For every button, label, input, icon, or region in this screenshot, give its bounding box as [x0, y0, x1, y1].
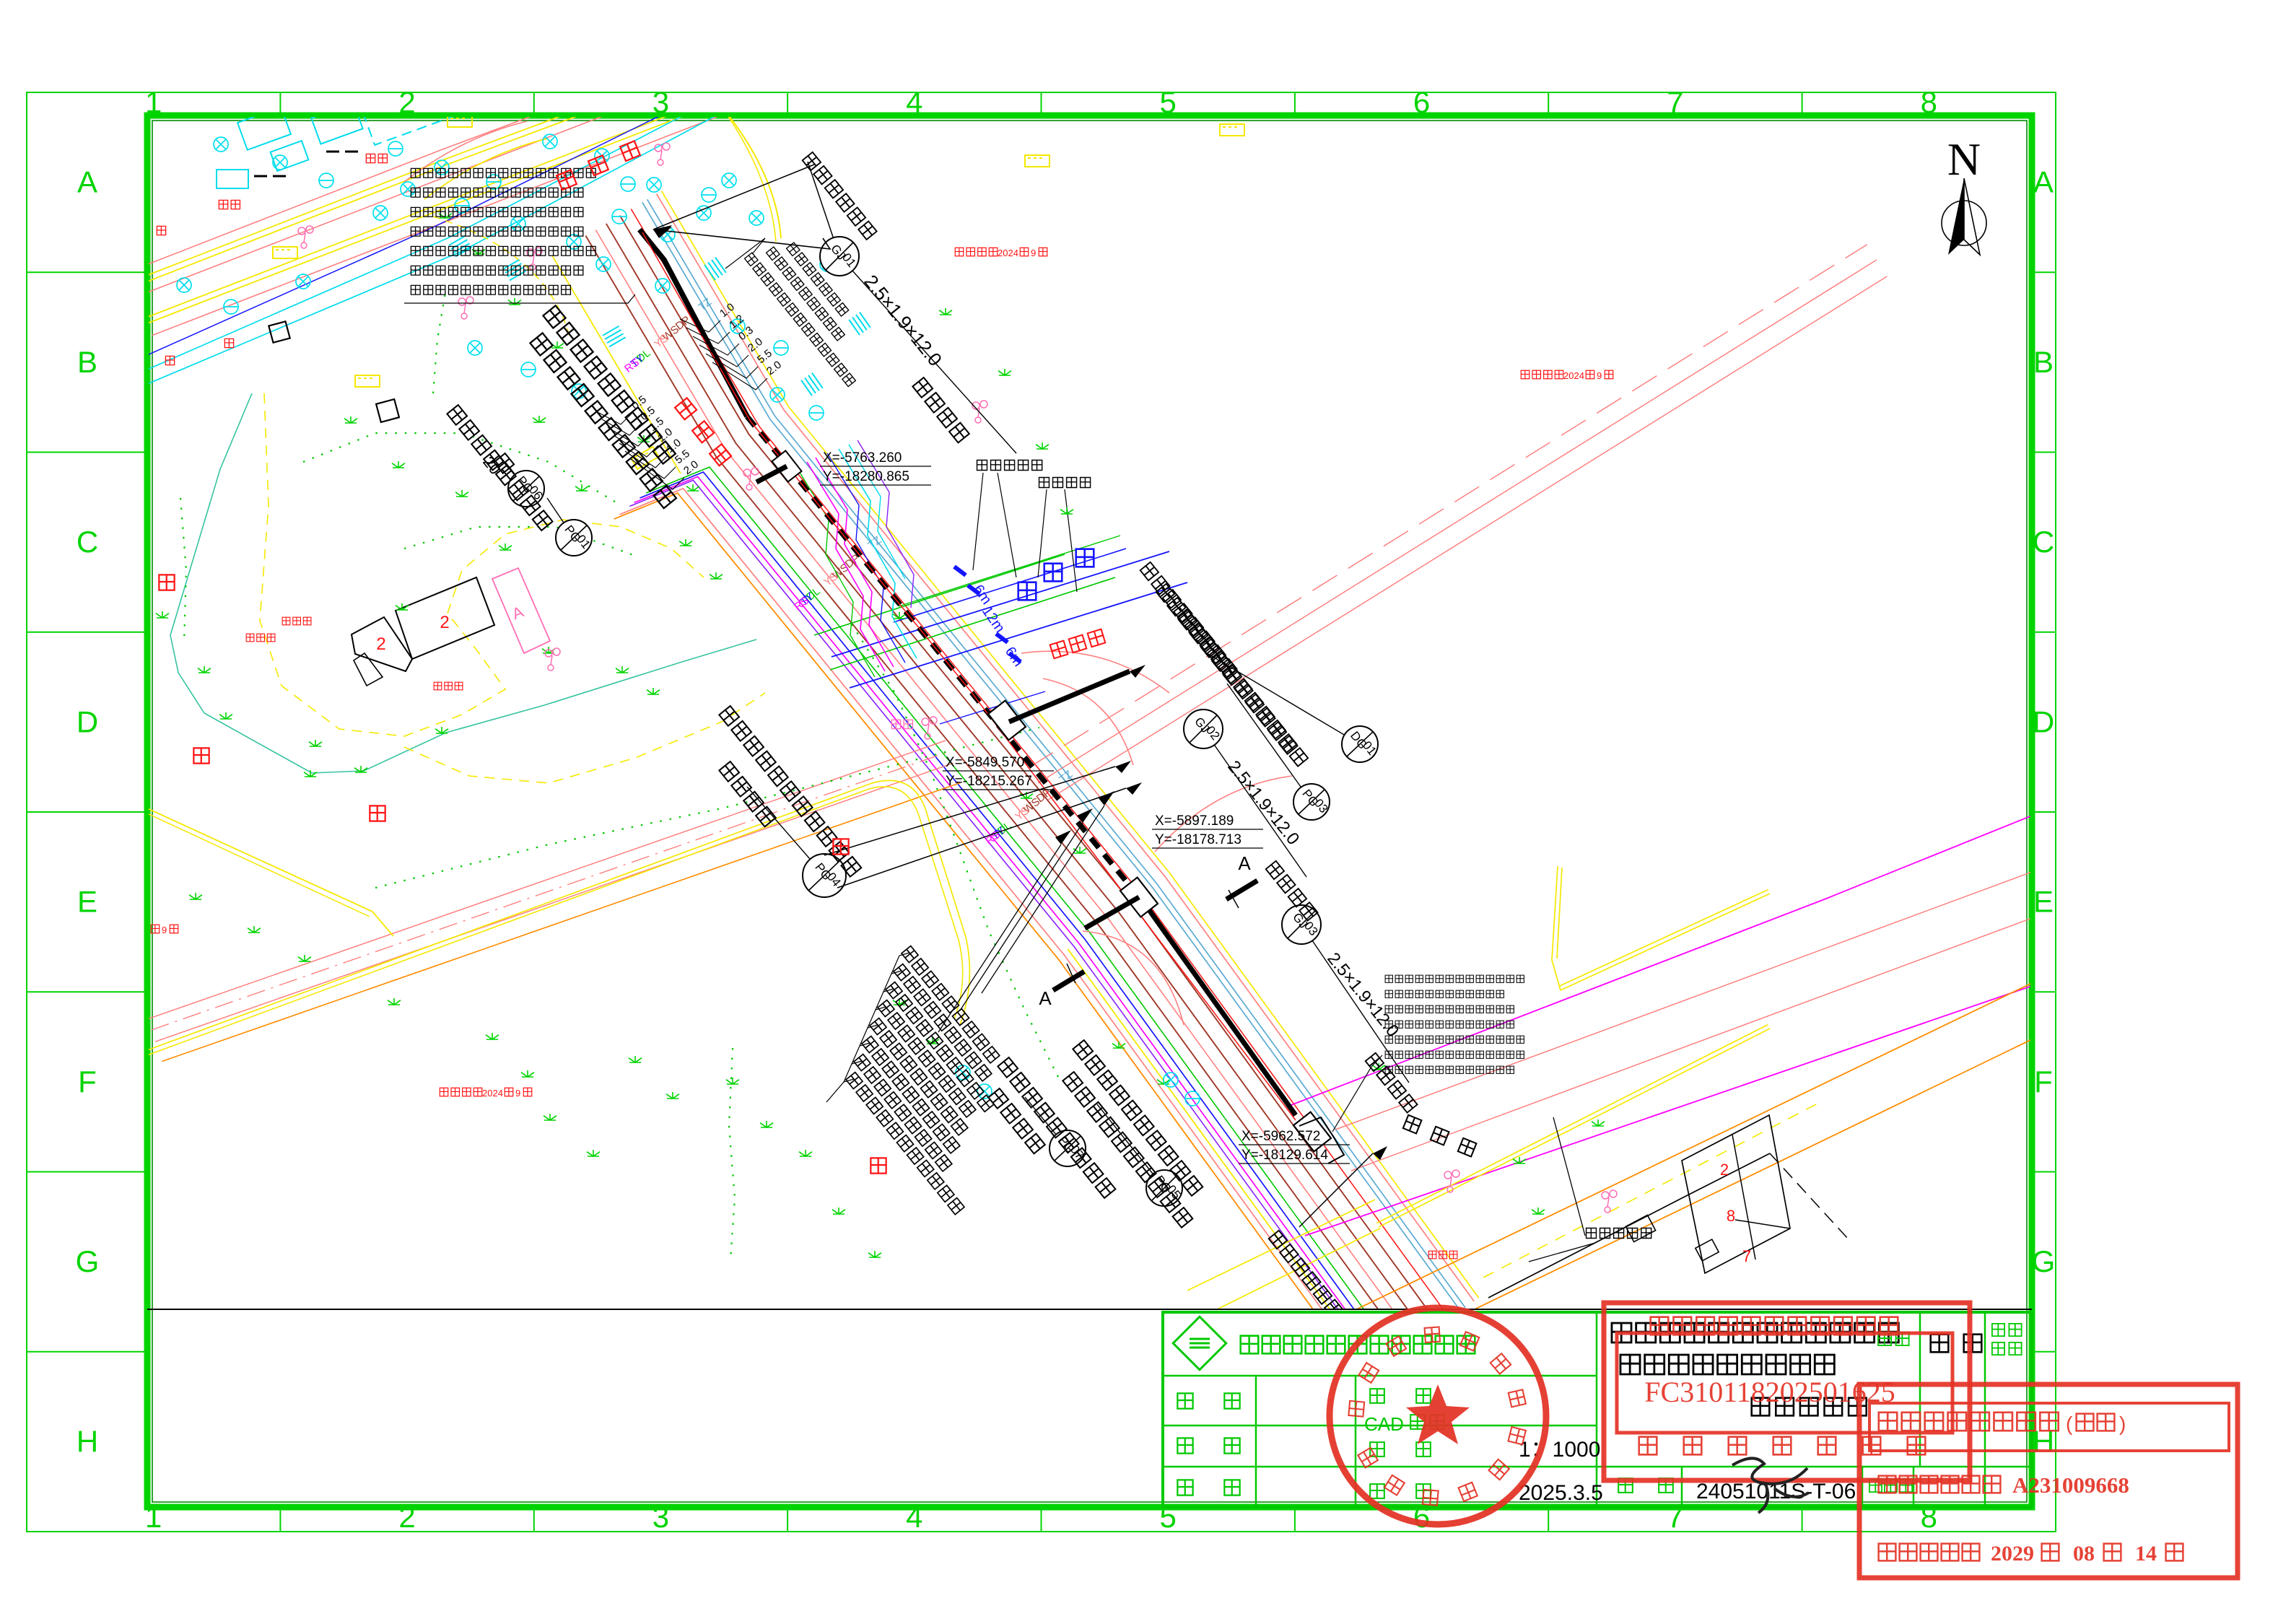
- svg-text:D: D: [2033, 704, 2054, 738]
- svg-text:C: C: [77, 525, 98, 559]
- svg-text:F: F: [2034, 1065, 2053, 1099]
- svg-text:8: 8: [1727, 1207, 1735, 1225]
- svg-text:A: A: [2033, 165, 2054, 199]
- svg-text:1: 1: [145, 1500, 162, 1534]
- svg-text:4: 4: [906, 1500, 922, 1534]
- svg-text:9: 9: [162, 925, 167, 935]
- svg-text:08: 08: [2073, 1542, 2095, 1566]
- svg-text:H: H: [77, 1424, 98, 1458]
- svg-text:9: 9: [1597, 370, 1602, 381]
- svg-text:3: 3: [653, 1500, 669, 1534]
- svg-text:Y=-18129.614: Y=-18129.614: [1241, 1148, 1328, 1163]
- svg-text:9: 9: [1031, 248, 1036, 258]
- svg-text:6: 6: [1413, 85, 1430, 119]
- svg-text:2025.3.5: 2025.3.5: [1519, 1481, 1603, 1505]
- svg-text:G: G: [76, 1244, 100, 1278]
- svg-text:A231009668: A231009668: [2012, 1472, 2129, 1498]
- svg-text:X=-5962.572: X=-5962.572: [1241, 1129, 1320, 1144]
- svg-text:3: 3: [653, 85, 669, 119]
- svg-text:Y=-18178.713: Y=-18178.713: [1155, 832, 1241, 847]
- svg-text:C: C: [2033, 525, 2054, 559]
- svg-text:X=-5849.570: X=-5849.570: [946, 755, 1024, 770]
- svg-text:5: 5: [1160, 85, 1177, 119]
- svg-text:9: 9: [515, 1088, 520, 1099]
- svg-text:D: D: [77, 704, 98, 738]
- svg-text:G: G: [2032, 1244, 2056, 1278]
- svg-text:CAD: CAD: [1364, 1413, 1404, 1435]
- svg-text:F: F: [78, 1065, 97, 1099]
- svg-text:8: 8: [1921, 85, 1937, 119]
- svg-text:1: 1: [145, 85, 162, 119]
- svg-text:B: B: [77, 345, 97, 379]
- svg-text:X=-5897.189: X=-5897.189: [1155, 813, 1234, 829]
- svg-text:Y=-18280.865: Y=-18280.865: [823, 469, 909, 484]
- svg-text:E: E: [2033, 885, 2054, 919]
- svg-text:2029: 2029: [1991, 1542, 2034, 1566]
- svg-text:N: N: [1947, 134, 1981, 185]
- svg-text:14: 14: [2135, 1542, 2157, 1566]
- svg-text:E: E: [77, 885, 97, 919]
- svg-text:A: A: [1238, 852, 1251, 874]
- svg-text:Y=-18215.267: Y=-18215.267: [946, 774, 1032, 789]
- svg-text:2: 2: [1720, 1161, 1729, 1179]
- svg-text:2024: 2024: [1563, 370, 1584, 381]
- svg-text:4: 4: [906, 85, 922, 119]
- svg-text:7: 7: [1742, 1247, 1751, 1265]
- svg-text:2: 2: [440, 613, 449, 632]
- svg-text:): ): [2119, 1413, 2126, 1435]
- svg-text:2: 2: [398, 1500, 415, 1534]
- svg-text:A: A: [77, 165, 97, 199]
- svg-text:B: B: [2033, 345, 2054, 379]
- svg-text:2024: 2024: [482, 1088, 503, 1099]
- svg-text:2: 2: [398, 85, 415, 119]
- svg-text:8: 8: [1921, 1500, 1937, 1534]
- svg-text:A: A: [1039, 987, 1052, 1009]
- svg-text:2024: 2024: [998, 248, 1018, 258]
- svg-text:1：1000: 1：1000: [1519, 1438, 1600, 1462]
- svg-text:(: (: [2066, 1413, 2073, 1435]
- svg-text:2: 2: [376, 634, 385, 654]
- svg-text:7: 7: [1667, 85, 1683, 119]
- svg-text:X=-5763.260: X=-5763.260: [823, 450, 902, 466]
